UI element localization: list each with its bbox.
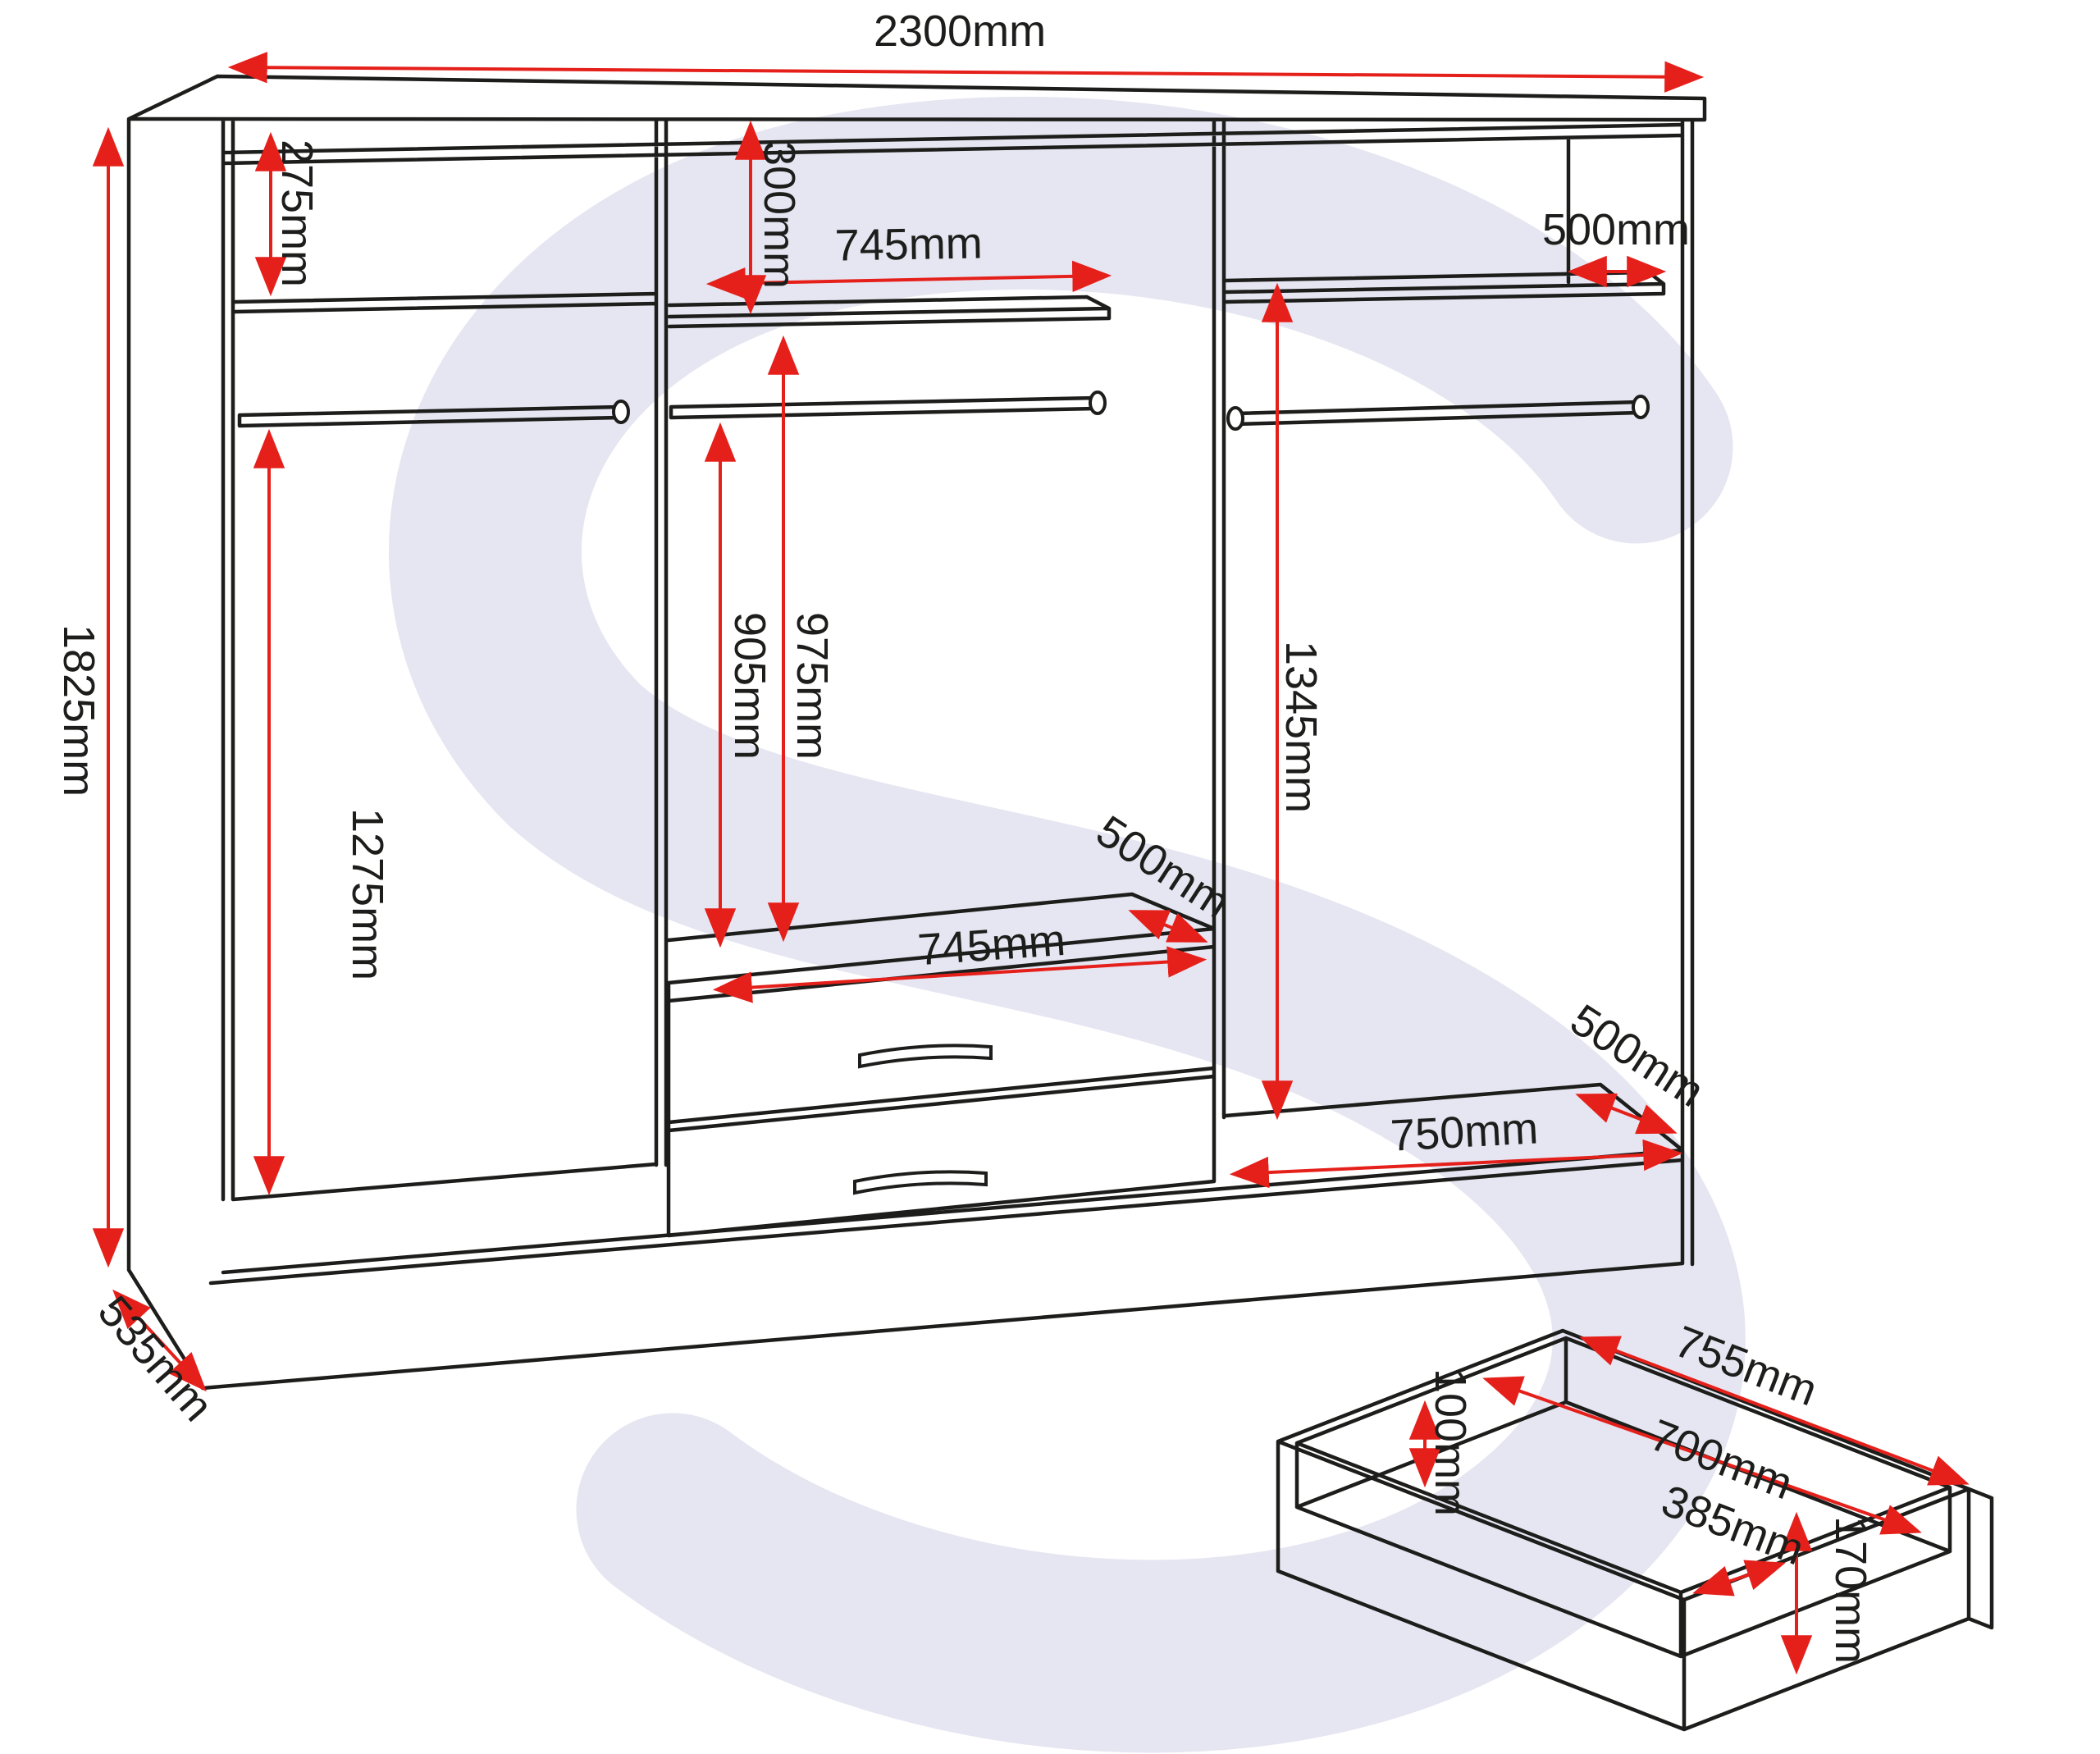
diagram-canvas: 2300mm 1825mm 275mm 535mm 1275mm 300mm 7… — [0, 0, 2100, 1754]
rail-end-cap — [614, 401, 628, 423]
dim-label-drawer-width: 745mm — [916, 916, 1067, 975]
dim-label-overall-width: 2300mm — [874, 7, 1046, 56]
dim-label-right-shelf-depth: 500mm — [1542, 205, 1690, 254]
dim-label-left-top-shelf: 275mm — [272, 139, 322, 287]
dim-label-right-base-width: 750mm — [1390, 1103, 1540, 1160]
dim-label-left-hanging: 1275mm — [343, 808, 392, 980]
dim-label-side-depth: 535mm — [89, 1287, 222, 1431]
dim-label-mid-top-shelf: 300mm — [755, 141, 804, 289]
rail-end-cap — [1228, 408, 1243, 429]
rail-end-cap — [1633, 396, 1648, 418]
dimension-line-overall-width — [234, 67, 1698, 77]
dim-label-mid-rail-drop: 905mm — [725, 612, 774, 760]
dim-label-mid-shelf-width: 745mm — [834, 218, 983, 270]
dim-label-box-front-height: 170mm — [1826, 1516, 1875, 1664]
rail-end-cap — [1090, 392, 1105, 413]
dim-label-overall-height: 1825mm — [54, 624, 103, 797]
dim-label-mid-shelf-drop: 975mm — [787, 612, 837, 760]
dim-label-right-hanging: 1345mm — [1276, 641, 1326, 813]
wardrobe-dimension-diagram: 2300mm 1825mm 275mm 535mm 1275mm 300mm 7… — [0, 0, 2100, 1754]
drawer-handle — [855, 1172, 986, 1193]
dim-label-box-side-height: 100mm — [1426, 1368, 1475, 1516]
drawer-handle — [860, 1045, 991, 1067]
